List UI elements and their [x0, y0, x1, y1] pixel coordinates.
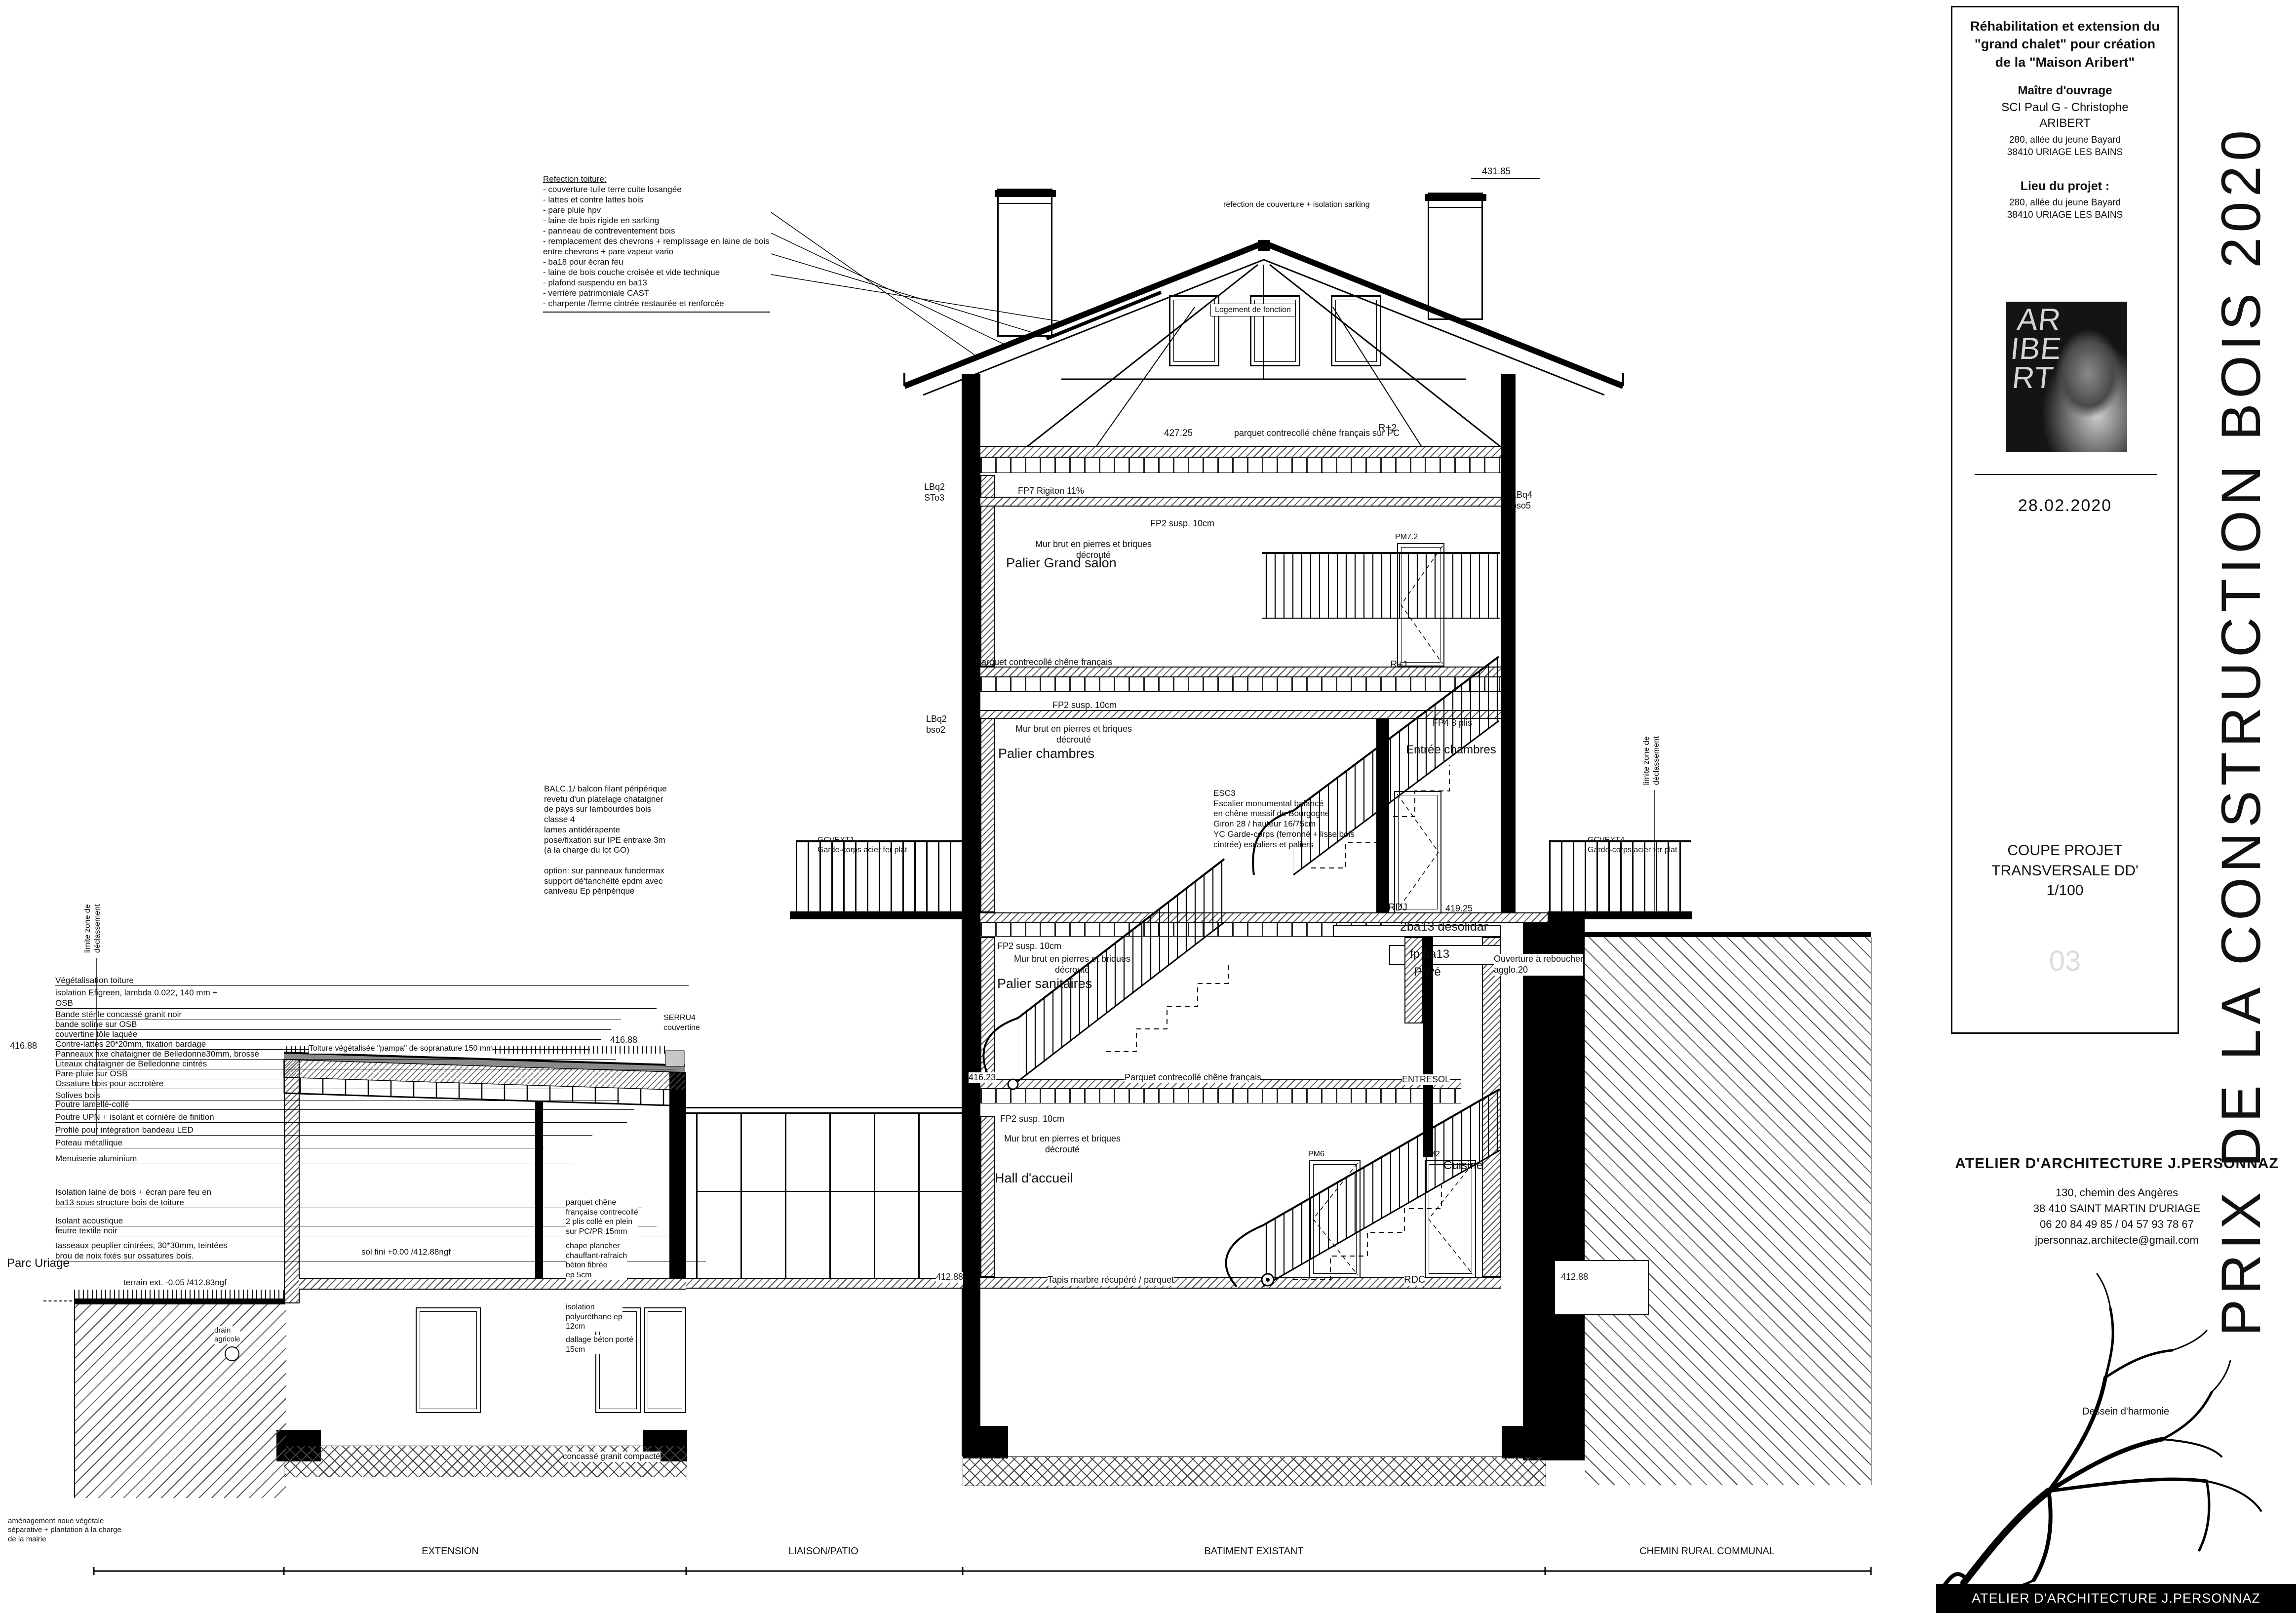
layer-note: couvertine tôle laquée: [55, 1029, 601, 1040]
layer-note: Liteaux chataigner de Belledonne cintrés: [55, 1059, 675, 1069]
client-address: 280, allée du jeune Bayard 38410 URIAGE …: [1952, 134, 2178, 158]
layer-note: Isolation laine de bois + écran pare feu…: [55, 1187, 642, 1208]
photo-overlay-text: AR IBE RT: [2006, 306, 2066, 393]
architect-contact: 130, chemin des Angères 38 410 SAINT MAR…: [1938, 1185, 2296, 1248]
layer-note: feutre textile noir: [55, 1225, 676, 1236]
layer-note: Panneaux fixe chataigner de Belledonne30…: [55, 1049, 616, 1060]
architect-block: ATELIER D'ARCHITECTURE J.PERSONNAZ 130, …: [1938, 1155, 2296, 1248]
layer-note: Poteau métallique: [55, 1138, 544, 1148]
drawing-title: COUPE PROJET TRANSVERSALE DD' 1/100: [1952, 841, 2178, 901]
layer-note: Poutre lamellé-collé: [55, 1099, 634, 1110]
layer-note: Isolant acoustique: [55, 1216, 657, 1226]
drain-circle: [225, 1347, 239, 1361]
layer-note: Végétalisation toiture: [55, 975, 689, 986]
drawing-sheet: Refection toiture: - couverture tuile te…: [0, 0, 2296, 1613]
scale-bar: [94, 1567, 1871, 1575]
layer-note: bande soline sur OSB: [55, 1019, 611, 1030]
drawing-date: 28.02.2020: [1952, 496, 2178, 515]
architect-footer-bar: ATELIER D'ARCHITECTURE J.PERSONNAZ: [1936, 1584, 2296, 1613]
layer-note: isolation Efigreen, lambda 0.022, 140 mm…: [55, 987, 657, 1009]
client-heading: Maître d'ouvrage: [1952, 84, 2178, 98]
refection-toiture-items: - couverture tuile terre cuite losangée …: [543, 184, 770, 309]
title-block-divider: [1975, 474, 2157, 475]
client-name: SCI Paul G - Christophe ARIBERT: [1952, 100, 2178, 130]
architect-tagline: Dessein d'harmonie: [2082, 1406, 2169, 1417]
layer-note: Ossature bois pour accrotère: [55, 1078, 563, 1089]
project-title: Réhabilitation et extension du "grand ch…: [1952, 17, 2178, 71]
roof-truss: [1027, 265, 1501, 447]
layer-note: Contre-lattes 20*20mm, fixation bardage: [55, 1039, 590, 1050]
architect-name: ATELIER D'ARCHITECTURE J.PERSONNAZ: [1938, 1155, 2296, 1172]
layer-note: Poutre UPN + isolant et cornière de fini…: [55, 1112, 627, 1123]
layer-note: Bande stérile concassé granit noir: [55, 1009, 621, 1020]
location-heading: Lieu du projet :: [1952, 179, 2178, 194]
refection-toiture-note: Refection toiture: - couverture tuile te…: [543, 174, 770, 313]
roof-verriere: [1047, 292, 1161, 339]
refection-toiture-title: Refection toiture:: [543, 174, 770, 184]
layer-note: tasseaux peuplier cintrées, 30*30mm, tei…: [55, 1240, 706, 1261]
layer-note: Profilé pour intégration bandeau LED: [55, 1125, 592, 1136]
leader-lines: [771, 212, 1066, 357]
title-block: Réhabilitation et extension du "grand ch…: [1951, 6, 2179, 1034]
staircase: [983, 553, 1500, 1287]
layer-note: Menuiserie aluminium: [55, 1153, 573, 1164]
sheet-number: 03: [1952, 944, 2178, 978]
location-address: 280, allée du jeune Bayard 38410 URIAGE …: [1952, 197, 2178, 221]
client-photo: AR IBE RT: [2006, 302, 2127, 452]
layer-note: Pare-pluie sur OSB: [55, 1068, 573, 1079]
